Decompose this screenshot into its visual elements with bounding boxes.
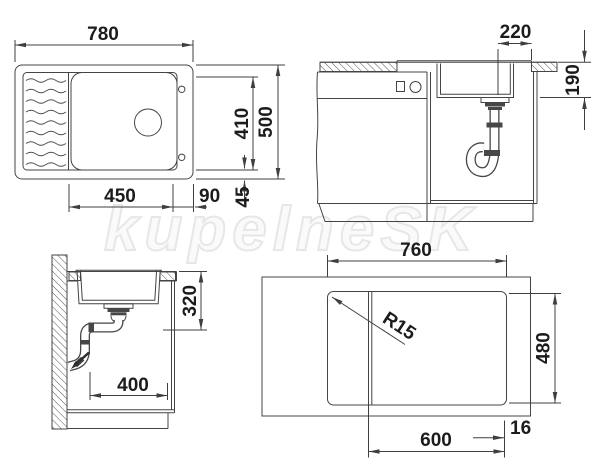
countertop-section-left xyxy=(320,62,397,71)
cutout-outline xyxy=(328,292,507,406)
dim-side-drain-height: 320 xyxy=(180,285,201,317)
dim-plan-bowl-depth: 410 xyxy=(232,108,253,140)
dim-side-drain-distance: 400 xyxy=(117,375,149,396)
dim-plan-rim-right: 90 xyxy=(199,186,220,207)
dim-edge-offset: 16 xyxy=(510,418,531,439)
drain-pipe xyxy=(69,304,133,369)
wall-section xyxy=(52,255,67,429)
counter-block-right xyxy=(160,272,176,281)
cutout-view: R15 760 480 600 16 xyxy=(262,240,561,458)
dim-cutout-width: 760 xyxy=(400,240,432,261)
dim-plan-depth: 500 xyxy=(256,106,277,138)
drainboard-waves xyxy=(26,79,66,167)
technical-drawing: kupelneSK xyxy=(0,0,600,468)
tap-hole-top xyxy=(179,86,185,92)
front-section-view: 220 190 xyxy=(316,22,591,222)
dim-cabinet-width: 600 xyxy=(420,430,452,451)
tap-hole-bottom xyxy=(179,154,185,160)
control-knob xyxy=(410,82,421,93)
plan-view: 780 410 500 450 90 45 xyxy=(15,24,285,212)
dim-plan-bowl-width: 450 xyxy=(104,186,136,207)
dim-plan-width: 780 xyxy=(87,24,119,45)
cabinet-break-line xyxy=(316,72,317,204)
drawing-canvas: 780 410 500 450 90 45 xyxy=(0,0,600,468)
counter-block-left xyxy=(69,272,81,281)
dim-front-bowl-height: 190 xyxy=(563,64,584,96)
dim-cutout-depth: 480 xyxy=(534,332,555,364)
countertop-section-right xyxy=(532,62,558,71)
control-square xyxy=(397,82,405,92)
dim-front-drain-offset: 220 xyxy=(500,22,532,43)
drain-hole xyxy=(135,109,162,136)
dim-cutout-radius: R15 xyxy=(379,308,420,345)
side-section-view: 320 400 xyxy=(52,255,207,429)
siphon xyxy=(471,98,509,173)
dim-plan-rim-front: 45 xyxy=(233,186,254,208)
